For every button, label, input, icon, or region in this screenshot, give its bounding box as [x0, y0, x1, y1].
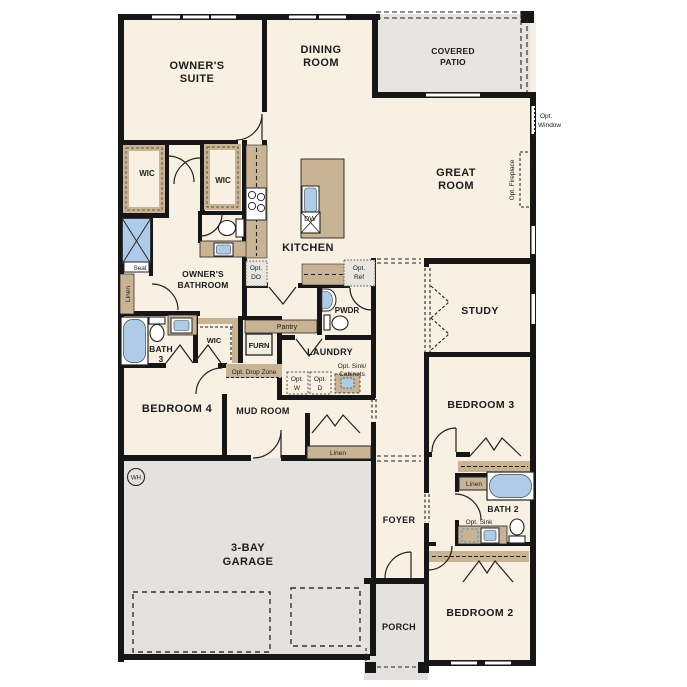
owners-bathroom-label: BATHROOM [177, 280, 228, 290]
covered-patio-label: COVERED [431, 46, 474, 56]
garage-label: 3-BAY [231, 542, 265, 554]
water-heater-label: WH [131, 476, 141, 482]
opt-washer-label: W [294, 385, 301, 392]
opt-washer-label: Opt. [291, 376, 303, 383]
bath2-tub [490, 475, 532, 498]
burner [248, 191, 255, 198]
toilet-tank [149, 317, 165, 324]
mudroom-linen-label: Linen [330, 450, 346, 457]
opt-sink-cabinets-label: Cabinets [339, 371, 365, 378]
toilet-tank [236, 219, 244, 237]
burner [257, 204, 264, 211]
window [532, 294, 536, 324]
opt-refrigerator-label: Opt. [353, 265, 365, 272]
laundry-opt-sink [341, 378, 354, 388]
opt-refrigerator-label: Ref [354, 274, 364, 281]
sink-basin [217, 245, 231, 254]
furnace-label: FURN [249, 341, 270, 350]
porch-column-right [418, 662, 429, 673]
toilet-bowl [510, 519, 524, 535]
window [485, 662, 511, 665]
toilet-tank [509, 536, 525, 543]
great-room-label: ROOM [438, 180, 474, 192]
sink-basin [484, 531, 496, 541]
pantry-label: Pantry [277, 324, 298, 331]
window [289, 16, 316, 19]
owners-suite-label: OWNER'S [170, 60, 225, 72]
window [211, 16, 236, 19]
bath3-label: BATH [149, 344, 173, 354]
dining-room-label: DINING [301, 44, 342, 56]
opt-sink-cabinets-label: Opt. Sink/ [338, 363, 367, 370]
porch-column-left [365, 662, 376, 673]
window [451, 662, 477, 665]
opt-double-oven-label: DO [251, 274, 261, 281]
toilet-bowl [332, 316, 348, 330]
owners-suite-label: SUITE [180, 73, 214, 85]
bath2-linen-label: Linen [466, 481, 482, 488]
wic2-label: WIC [215, 176, 231, 185]
window [183, 16, 209, 19]
opt-dryer-label: Opt. [314, 376, 326, 383]
bedroom2-label: BEDROOM 2 [446, 607, 513, 619]
bedroom4-label: BEDROOM 4 [142, 403, 213, 415]
great-room-label: GREAT [436, 167, 476, 179]
laundry-label: LAUNDRY [307, 347, 353, 357]
bath2-label: BATH 2 [487, 504, 518, 514]
pwdr-sink [322, 292, 333, 309]
toilet-bowl [219, 221, 236, 236]
covered-patio-label: PATIO [440, 57, 466, 67]
kitchen-label: KITCHEN [282, 242, 334, 254]
sliding-door [426, 94, 480, 97]
foyer-label: FOYER [383, 515, 416, 525]
bedroom3-label: BEDROOM 3 [447, 399, 514, 411]
owners-bathroom-label: OWNER'S [182, 269, 224, 279]
powder-label: PWDR [335, 306, 360, 315]
burner [248, 202, 255, 209]
island-sink [305, 188, 317, 212]
opt-dryer-label: D [318, 385, 323, 392]
bath3-label: 3 [159, 354, 164, 364]
owners-linen-label: Linen [125, 286, 132, 302]
study-label: STUDY [461, 305, 499, 317]
dishwasher-label: DW [304, 216, 316, 223]
window [532, 226, 536, 254]
dining-room-label: ROOM [303, 57, 339, 69]
wic4-shelf-side [232, 318, 238, 363]
sink-basin [174, 321, 189, 331]
toilet-tank [324, 315, 330, 330]
toilet-bowl [150, 325, 164, 342]
bath3-tub [124, 320, 146, 363]
garage-label: GARAGE [223, 556, 274, 568]
opt-window-label: Window [538, 122, 561, 129]
wic1-label: WIC [139, 169, 155, 178]
porch-label: PORCH [382, 622, 416, 632]
opt-double-oven-label: Opt. [250, 265, 262, 272]
floor-plan: OWNER'S SUITE DINING ROOM COVERED PATIO … [0, 0, 687, 687]
kitchen-counter-bottom [302, 264, 345, 285]
shower-seat-label: Seat [133, 265, 147, 272]
window [319, 16, 346, 19]
window [152, 16, 180, 19]
bath2-opt-sink-label: Opt. Sink [466, 519, 493, 526]
opt-fireplace-label: Opt. Fireplace [509, 159, 516, 200]
mud-room-label: MUD ROOM [236, 406, 289, 416]
opt-refrigerator-box [344, 260, 375, 286]
opt-drop-zone-label: Opt. Drop Zone [232, 369, 277, 376]
opt-window-label: Opt. [540, 113, 552, 120]
burner [257, 193, 264, 200]
wic4-label: WIC [207, 336, 222, 345]
